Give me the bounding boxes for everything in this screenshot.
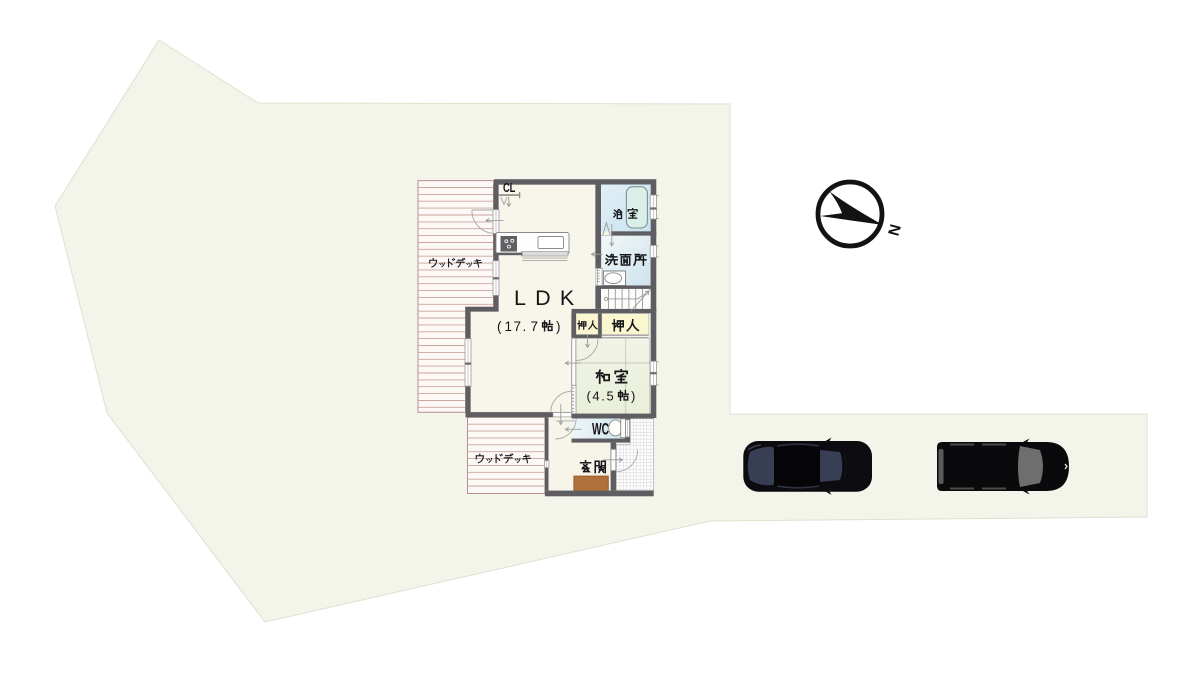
svg-text:LDK: LDK [514,286,583,310]
svg-text:WC: WC [592,420,609,438]
svg-text:): ) [556,319,561,334]
svg-text:17.: 17. [505,319,528,334]
svg-text:(4.5: (4.5 [587,389,616,404]
svg-text:): ) [631,389,635,404]
svg-text:7: 7 [531,319,539,334]
svg-text:CL: CL [503,182,516,196]
svg-text:N: N [884,222,903,237]
svg-text:(: ( [497,319,502,334]
